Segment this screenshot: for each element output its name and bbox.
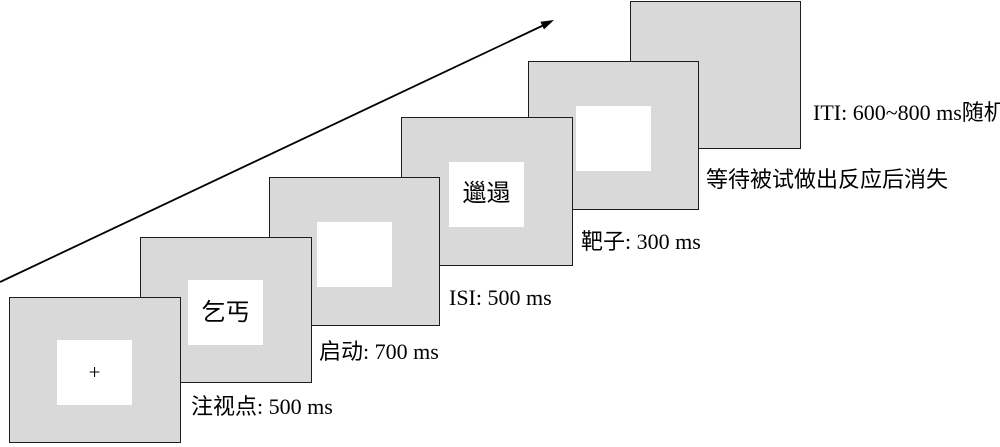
label-prime-duration: 启动: 700 ms	[319, 339, 439, 364]
label-isi-duration: ISI: 500 ms	[449, 285, 552, 310]
stimulus-box: 邋遢	[449, 162, 524, 227]
stimulus-box	[576, 106, 651, 171]
label-iti-duration: ITI: 600~800 ms随机	[813, 100, 1000, 125]
label-target-duration: 靶子: 300 ms	[581, 229, 701, 254]
prime-word-text: 乞丐	[202, 301, 250, 325]
label-response-note: 等待被试做出反应后消失	[706, 167, 948, 192]
stimulus-box: 乞丐	[188, 280, 263, 345]
arrow-head-icon	[540, 20, 554, 29]
label-fixation-duration: 注视点: 500 ms	[191, 394, 333, 419]
trial-frame-fixation: +	[9, 297, 181, 443]
fixation-cross-glyph: +	[89, 362, 101, 383]
stimulus-box	[317, 222, 392, 287]
target-word-text: 邋遢	[463, 182, 511, 206]
experiment-procedure-diagram: + 乞丐 邋遢 注视点: 500 ms 启动: 700 ms ISI: 500 …	[0, 0, 1000, 447]
stimulus-box: +	[57, 340, 132, 405]
